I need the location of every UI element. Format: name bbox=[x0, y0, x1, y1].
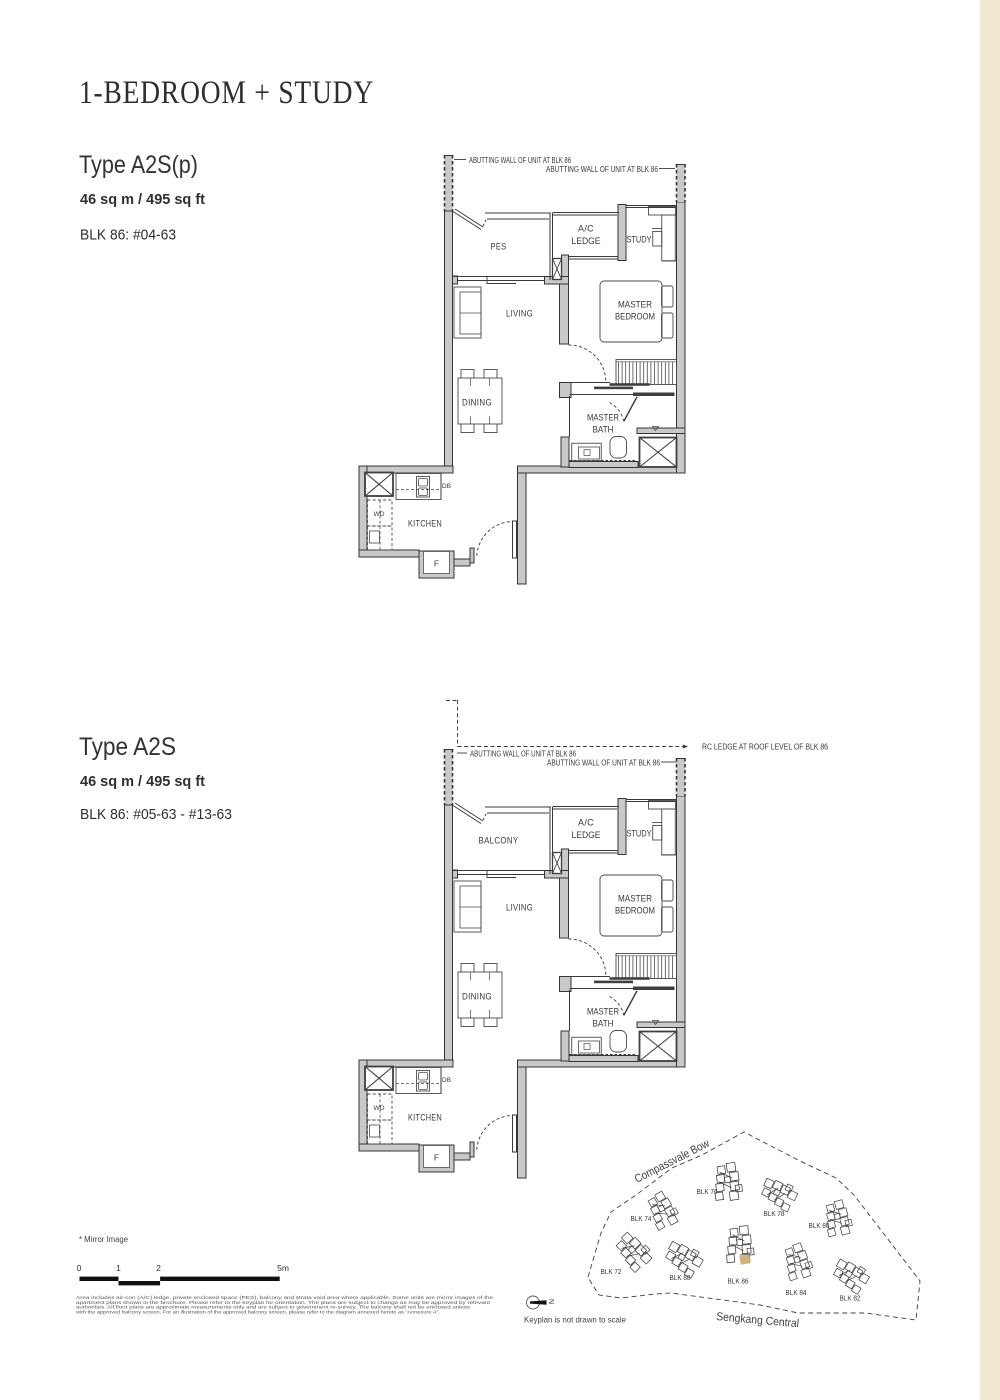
svg-text:STUDY: STUDY bbox=[627, 829, 653, 840]
svg-text:LIVING: LIVING bbox=[506, 903, 533, 914]
svg-text:46 sq m / 495 sq ft: 46 sq m / 495 sq ft bbox=[80, 191, 205, 208]
svg-text:N: N bbox=[547, 1299, 554, 1304]
svg-text:MASTER: MASTER bbox=[618, 300, 652, 311]
svg-text:BLK 80: BLK 80 bbox=[809, 1221, 830, 1230]
svg-text:BLK 76: BLK 76 bbox=[697, 1187, 718, 1196]
svg-text:BLK 88: BLK 88 bbox=[670, 1273, 691, 1282]
svg-text:BEDROOM: BEDROOM bbox=[615, 906, 655, 917]
svg-text:DB: DB bbox=[442, 1077, 451, 1084]
svg-text:LEDGE: LEDGE bbox=[572, 830, 601, 841]
svg-text:with the approved balcony scre: with the approved balcony screen. For an… bbox=[76, 1309, 440, 1315]
svg-text:ABUTTING WALL OF UNIT AT BLK 8: ABUTTING WALL OF UNIT AT BLK 86 bbox=[547, 759, 660, 768]
svg-text:ABUTTING WALL OF UNIT AT BLK 8: ABUTTING WALL OF UNIT AT BLK 86 bbox=[469, 156, 571, 165]
svg-text:A/C: A/C bbox=[578, 224, 594, 235]
svg-text:MASTER: MASTER bbox=[587, 413, 619, 424]
svg-text:F: F bbox=[434, 559, 439, 569]
svg-text:STUDY: STUDY bbox=[627, 235, 653, 246]
svg-text:1-BEDROOM + STUDY: 1-BEDROOM + STUDY bbox=[79, 75, 374, 111]
svg-text:PES: PES bbox=[491, 242, 507, 253]
svg-text:DINING: DINING bbox=[462, 398, 492, 409]
svg-text:DB: DB bbox=[442, 483, 451, 490]
svg-text:F: F bbox=[434, 1153, 439, 1163]
svg-text:2: 2 bbox=[156, 1263, 161, 1273]
svg-text:0: 0 bbox=[77, 1263, 82, 1273]
svg-text:BLK 84: BLK 84 bbox=[786, 1288, 807, 1297]
svg-text:WD: WD bbox=[374, 1105, 385, 1112]
svg-text:BATH: BATH bbox=[593, 425, 614, 436]
svg-text:46 sq m / 495 sq ft: 46 sq m / 495 sq ft bbox=[80, 773, 205, 790]
svg-text:BLK 72: BLK 72 bbox=[601, 1267, 622, 1276]
svg-text:BLK 86: BLK 86 bbox=[728, 1277, 749, 1286]
svg-text:* Mirror Image: * Mirror Image bbox=[79, 1234, 128, 1244]
svg-text:WD: WD bbox=[374, 511, 385, 518]
svg-text:Type A2S: Type A2S bbox=[79, 733, 176, 761]
svg-text:MASTER: MASTER bbox=[587, 1007, 619, 1018]
svg-text:Type A2S(p): Type A2S(p) bbox=[79, 151, 198, 179]
svg-text:BLK 86: #04-63: BLK 86: #04-63 bbox=[80, 227, 176, 244]
svg-text:MASTER: MASTER bbox=[618, 894, 652, 905]
svg-text:BLK 74: BLK 74 bbox=[631, 1214, 652, 1223]
svg-text:Keyplan is not drawn to scale: Keyplan is not drawn to scale bbox=[524, 1315, 626, 1325]
svg-text:LIVING: LIVING bbox=[506, 309, 533, 320]
svg-text:BLK 86: #05-63 - #13-63: BLK 86: #05-63 - #13-63 bbox=[80, 806, 232, 823]
svg-text:RC LEDGE AT ROOF LEVEL OF BLK: RC LEDGE AT ROOF LEVEL OF BLK 86 bbox=[702, 743, 828, 752]
svg-text:1: 1 bbox=[116, 1263, 121, 1273]
svg-text:LEDGE: LEDGE bbox=[572, 236, 601, 247]
svg-text:A/C: A/C bbox=[578, 818, 594, 829]
svg-text:DINING: DINING bbox=[462, 992, 492, 1003]
svg-text:BLK 78: BLK 78 bbox=[764, 1209, 785, 1218]
svg-text:BALCONY: BALCONY bbox=[479, 836, 519, 847]
svg-text:BLK 82: BLK 82 bbox=[840, 1294, 861, 1303]
svg-text:ABUTTING WALL OF UNIT AT BLK 8: ABUTTING WALL OF UNIT AT BLK 86 bbox=[470, 750, 576, 759]
svg-text:BATH: BATH bbox=[593, 1019, 614, 1030]
svg-text:KITCHEN: KITCHEN bbox=[408, 1113, 442, 1124]
svg-text:ABUTTING WALL OF UNIT AT BLK 8: ABUTTING WALL OF UNIT AT BLK 86 bbox=[546, 165, 658, 174]
svg-text:5m: 5m bbox=[277, 1263, 289, 1273]
svg-text:BEDROOM: BEDROOM bbox=[615, 312, 655, 323]
svg-text:KITCHEN: KITCHEN bbox=[408, 519, 442, 530]
